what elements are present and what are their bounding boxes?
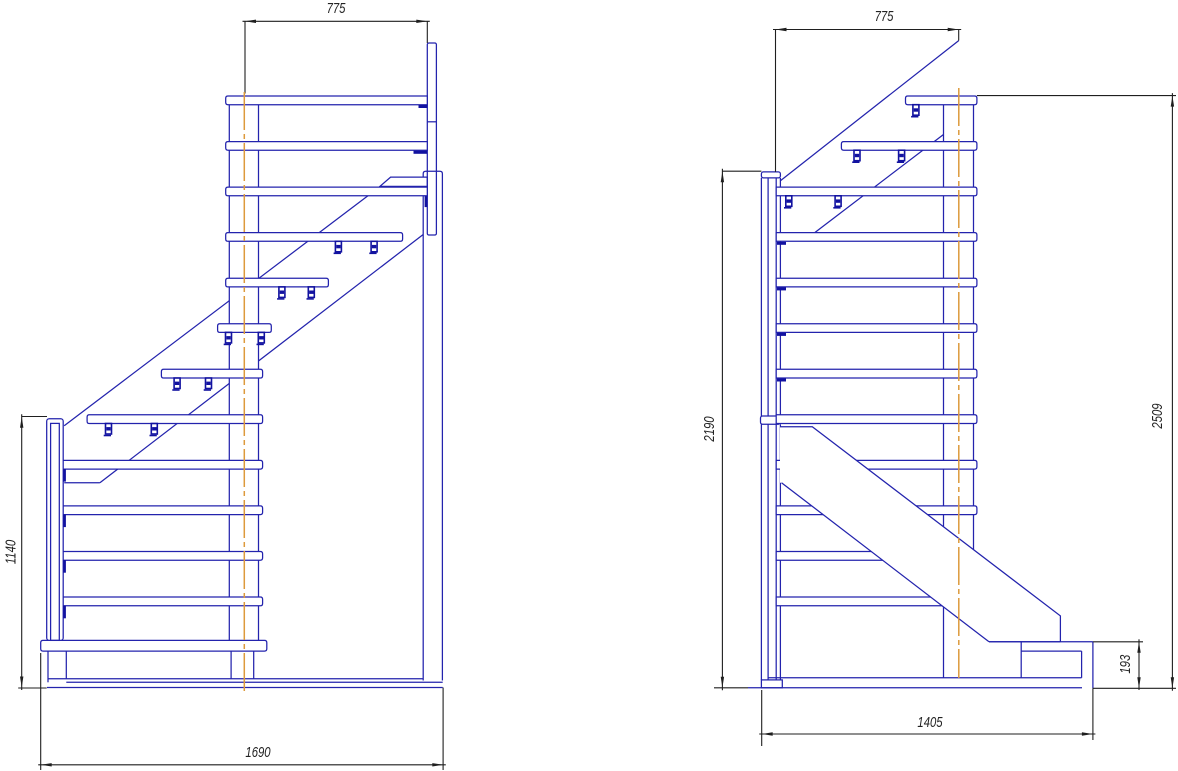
svg-text:775: 775 [327, 0, 347, 16]
svg-text:1690: 1690 [245, 743, 271, 760]
svg-text:2190: 2190 [700, 416, 717, 443]
svg-text:1405: 1405 [917, 713, 943, 730]
svg-text:775: 775 [875, 7, 895, 24]
svg-text:1140: 1140 [2, 539, 19, 564]
svg-text:193: 193 [1116, 654, 1133, 674]
svg-text:2509: 2509 [1148, 403, 1165, 429]
